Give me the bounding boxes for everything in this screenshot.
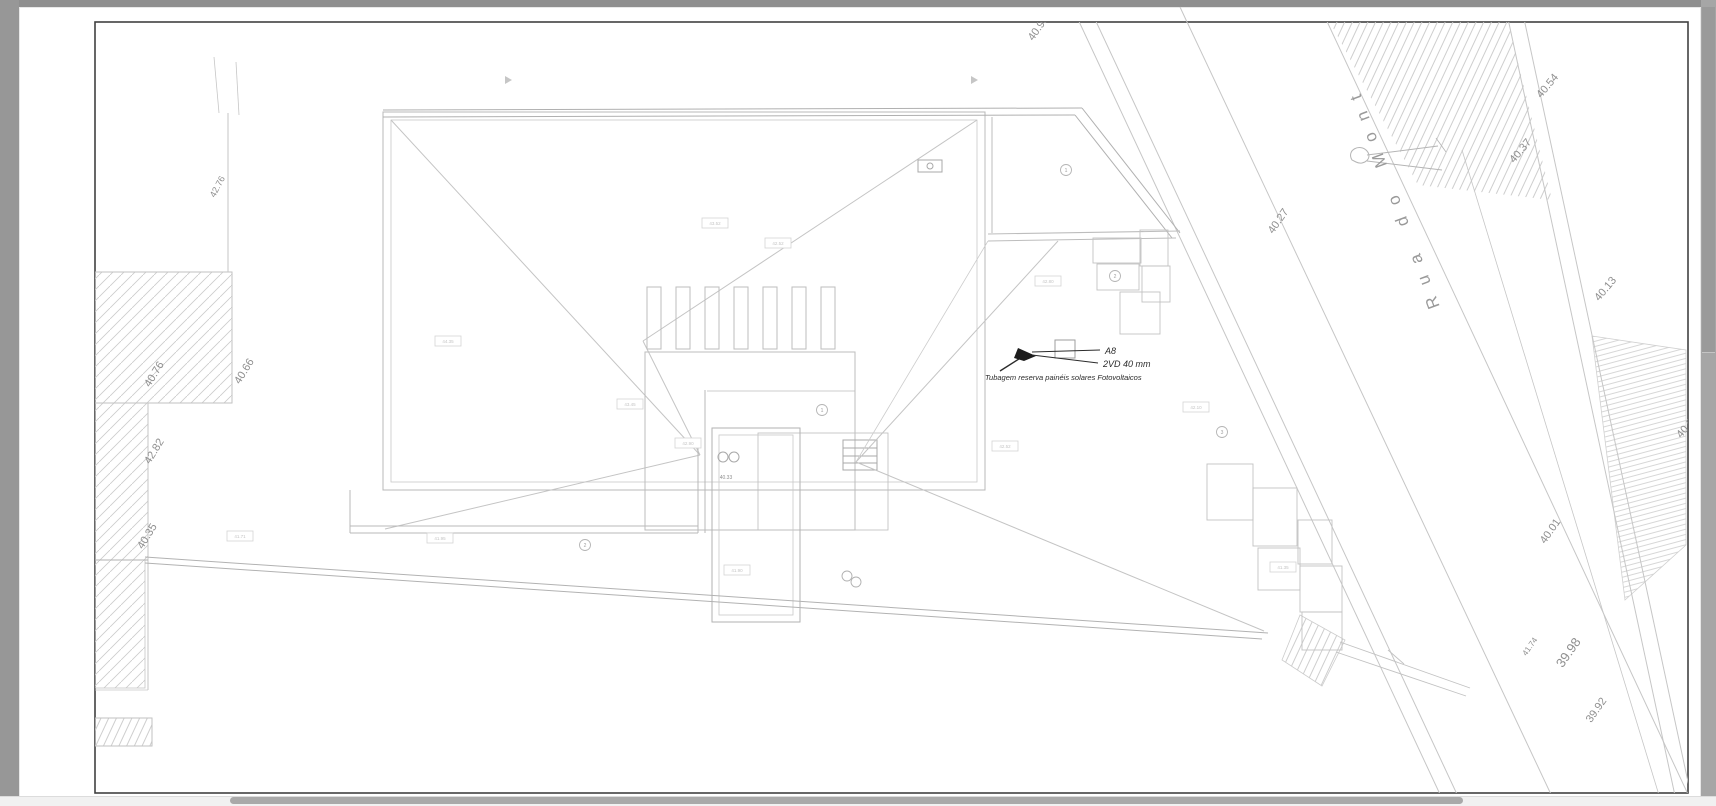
roof-louvers [647,287,835,349]
survey-tag-value: 42.90 [682,441,694,446]
annotation-label: A8 [1104,346,1116,356]
horizontal-scrollbar-thumb[interactable] [230,797,1463,804]
circled-marker-number: 1 [1065,168,1068,174]
survey-tag-value: 41.95 [434,536,446,541]
survey-tag-value: 42.80 [1042,279,1054,284]
annotation-note: Tubagem reserva painéis solares Fotovolt… [985,373,1142,382]
survey-tag-value: 42.10 [1190,405,1202,410]
elevation-label: 42.76 [208,174,227,199]
north-tick-icon [505,76,512,84]
survey-tag-value: 44.35 [442,339,454,344]
top-wall [383,108,1180,238]
survey-tag-value: 41.71 [234,534,246,539]
hatch-areas [95,22,1686,746]
site-boundary [95,557,1268,639]
site-plan-drawing: A8 2VD 40 mm Tubagem reserva painéis sol… [95,0,1701,805]
survey-tag-value: 41.90 [731,568,743,573]
survey-tags: 43.5242.5244.3543.4542.9042.8042.5241.95… [227,218,1296,575]
elevation-label: 39.92 [1584,696,1610,725]
elevation-label: 40.98 [1026,14,1052,43]
left-roof [350,112,985,533]
elevation-label: 40.13 [1592,275,1619,304]
annex-buildings [842,230,1470,696]
circled-marker-number: 3 [1221,430,1224,436]
elevation-label: 40.01 [1538,517,1564,546]
circled-marker-number: 1 [821,408,824,414]
elevation-label: 41.74 [1521,635,1540,657]
central-core [645,352,888,622]
cad-canvas[interactable]: A8 2VD 40 mm Tubagem reserva painéis sol… [0,0,1716,805]
survey-tag-value: 43.45 [624,402,636,407]
road-line [1180,7,1187,22]
elevation-label: 40.66 [232,357,257,387]
elevation-label: 39.98 [1553,635,1584,670]
survey-tag-value: 42.52 [772,241,784,246]
circled-marker-number: 2 [584,543,587,549]
survey-tag-value: 43.52 [709,221,721,226]
survey-tag-value: 42.52 [999,444,1011,449]
solar-pipe-annotation: A8 2VD 40 mm Tubagem reserva painéis sol… [985,346,1151,382]
circled-markers: 12132 [580,165,1228,551]
elevation-label: 40.33 [720,475,733,481]
circled-marker-number: 2 [1114,274,1117,280]
elevation-label: 40.27 [1266,207,1292,236]
road-lines [1069,0,1693,805]
survey-tag-value: 41.35 [1277,565,1289,570]
annotation-pipe: 2VD 40 mm [1102,359,1151,369]
north-tick-icon [971,76,978,84]
